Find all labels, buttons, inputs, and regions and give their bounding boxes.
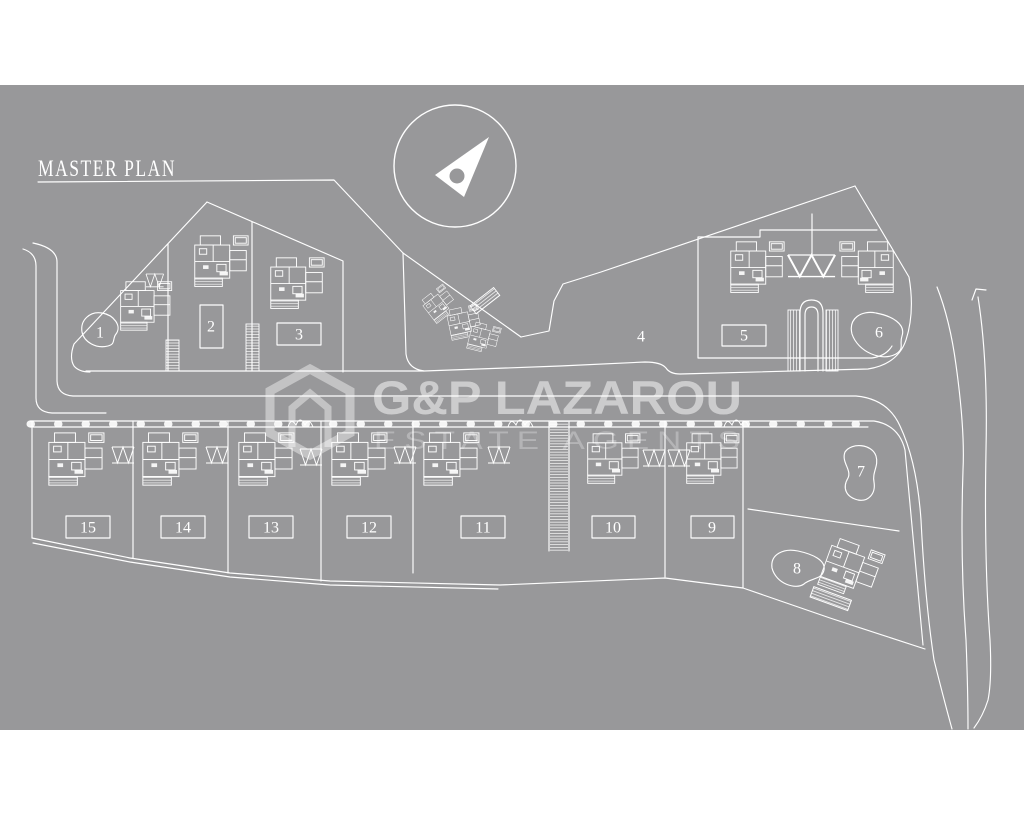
master-plan-page: 1 2 3 4 5 6 7 8 9 10 11 12 13 14 15 G&P … — [0, 0, 1024, 819]
plot-label-13: 13 — [263, 520, 279, 537]
watermark-brand: G&P LAZAROU — [372, 371, 742, 424]
plot-label-15: 15 — [80, 520, 96, 537]
north-arrow-hole — [450, 169, 465, 184]
plot-label-1: 1 — [96, 325, 104, 342]
plot-label-3: 3 — [295, 327, 303, 344]
plot-label-5: 5 — [740, 328, 748, 345]
watermark-tagline: ESTATE AGENTS — [374, 427, 748, 455]
page-title: MASTER PLAN — [38, 156, 176, 181]
plot-label-2: 2 — [207, 319, 215, 336]
plot-label-11: 11 — [475, 520, 490, 537]
plot-label-8: 8 — [793, 561, 801, 578]
plot-label-12: 12 — [361, 520, 377, 537]
plot-label-10: 10 — [605, 520, 621, 537]
plot-label-7: 7 — [857, 464, 865, 481]
plot-label-9: 9 — [708, 520, 716, 537]
plot-label-14: 14 — [175, 520, 191, 537]
plot-label-4: 4 — [637, 329, 645, 346]
master-plan-drawing: 1 2 3 4 5 6 7 8 9 10 11 12 13 14 15 G&P … — [0, 0, 1024, 819]
plot-label-6: 6 — [875, 325, 883, 342]
